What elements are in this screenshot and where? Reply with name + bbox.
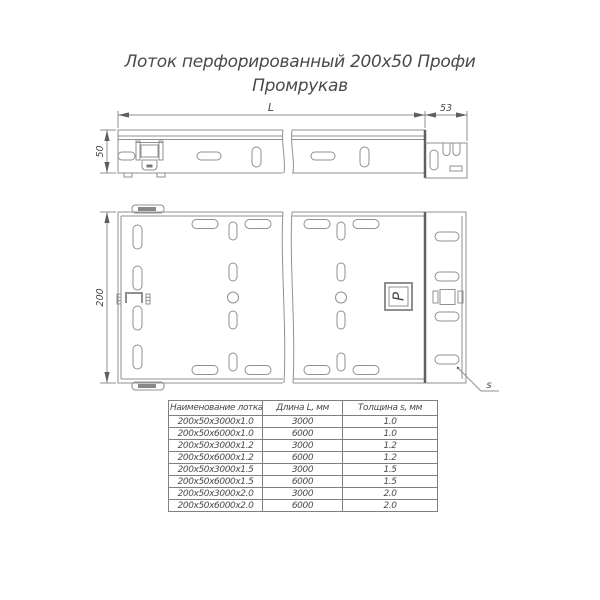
col-header-thickness: Толщина s, мм <box>343 401 438 416</box>
top-view: Р 200 <box>95 205 499 391</box>
cell-name: 200х50х3000х1.0 <box>169 416 263 428</box>
drawing-canvas: L 53 50 <box>0 100 600 405</box>
drawing-sheet: Лоток перфорированный 200х50 Профи Промр… <box>0 0 600 600</box>
side-view-connector <box>425 143 467 178</box>
logo-letter: Р <box>390 291 408 301</box>
top-view-left-slots <box>133 225 142 369</box>
cell-length: 6000 <box>263 452 343 464</box>
table-row: 200х50х6000х1.5 6000 1.5 <box>169 476 438 488</box>
table-row: 200х50х6000х2.0 6000 2.0 <box>169 500 438 512</box>
cell-thickness: 1.5 <box>343 464 438 476</box>
top-view-mid-left-slots <box>192 220 271 375</box>
top-view-mid-right-slots <box>304 220 379 375</box>
cell-name: 200х50х6000х1.0 <box>169 428 263 440</box>
cell-length: 3000 <box>263 440 343 452</box>
cell-name: 200х50х3000х1.5 <box>169 464 263 476</box>
cell-thickness: 1.2 <box>343 440 438 452</box>
side-view: L 53 50 <box>95 101 467 178</box>
cell-name: 200х50х6000х1.5 <box>169 476 263 488</box>
cell-name: 200х50х6000х1.2 <box>169 452 263 464</box>
cell-length: 3000 <box>263 464 343 476</box>
thickness-label: s <box>486 380 491 391</box>
dimension-connector-width: 53 <box>425 103 467 141</box>
cell-length: 6000 <box>263 428 343 440</box>
drawing-title: Лоток перфорированный 200х50 Профи Промр… <box>0 50 600 98</box>
top-view-latch <box>117 293 150 304</box>
dimension-width: 200 <box>95 212 116 383</box>
col-header-name: Наименование лотка <box>169 401 263 416</box>
dimension-height: 50 <box>95 130 116 173</box>
side-view-feet <box>124 173 165 177</box>
cell-thickness: 2.0 <box>343 488 438 500</box>
table-row: 200х50х3000х1.0 3000 1.0 <box>169 416 438 428</box>
cell-length: 3000 <box>263 488 343 500</box>
title-line1: Лоток перфорированный 200х50 Профи <box>0 50 600 74</box>
table-row: 200х50х3000х1.5 3000 1.5 <box>169 464 438 476</box>
top-view-body <box>118 212 466 383</box>
cell-thickness: 1.0 <box>343 416 438 428</box>
cell-length: 6000 <box>263 500 343 512</box>
cell-name: 200х50х3000х1.2 <box>169 440 263 452</box>
table-row: 200х50х6000х1.2 6000 1.2 <box>169 452 438 464</box>
connector-width-label: 53 <box>440 103 452 114</box>
table-header-row: Наименование лотка Длина L, мм Толщина s… <box>169 401 438 416</box>
cell-name: 200х50х6000х2.0 <box>169 500 263 512</box>
side-view-body <box>118 130 425 178</box>
promrukav-logo-icon: Р <box>385 283 412 310</box>
dimension-length: L <box>118 101 425 128</box>
title-line2: Промрукав <box>0 74 600 98</box>
table-row: 200х50х3000х2.0 3000 2.0 <box>169 488 438 500</box>
table-row: 200х50х6000х1.0 6000 1.0 <box>169 428 438 440</box>
table-row: 200х50х3000х1.2 3000 1.2 <box>169 440 438 452</box>
cell-length: 3000 <box>263 416 343 428</box>
cell-thickness: 1.2 <box>343 452 438 464</box>
length-label: L <box>268 101 274 114</box>
table-body: 200х50х3000х1.0 3000 1.0 200х50х6000х1.0… <box>169 416 438 512</box>
thickness-leader: s <box>457 367 499 391</box>
col-header-length: Длина L, мм <box>263 401 343 416</box>
height-label: 50 <box>95 145 106 157</box>
side-view-latch <box>118 141 163 170</box>
cell-name: 200х50х3000х2.0 <box>169 488 263 500</box>
cell-length: 6000 <box>263 476 343 488</box>
size-table: Наименование лотка Длина L, мм Толщина s… <box>168 400 438 512</box>
cell-thickness: 1.5 <box>343 476 438 488</box>
cell-thickness: 2.0 <box>343 500 438 512</box>
width-label: 200 <box>95 288 106 306</box>
top-view-connector-slots <box>433 232 463 364</box>
cell-thickness: 1.0 <box>343 428 438 440</box>
